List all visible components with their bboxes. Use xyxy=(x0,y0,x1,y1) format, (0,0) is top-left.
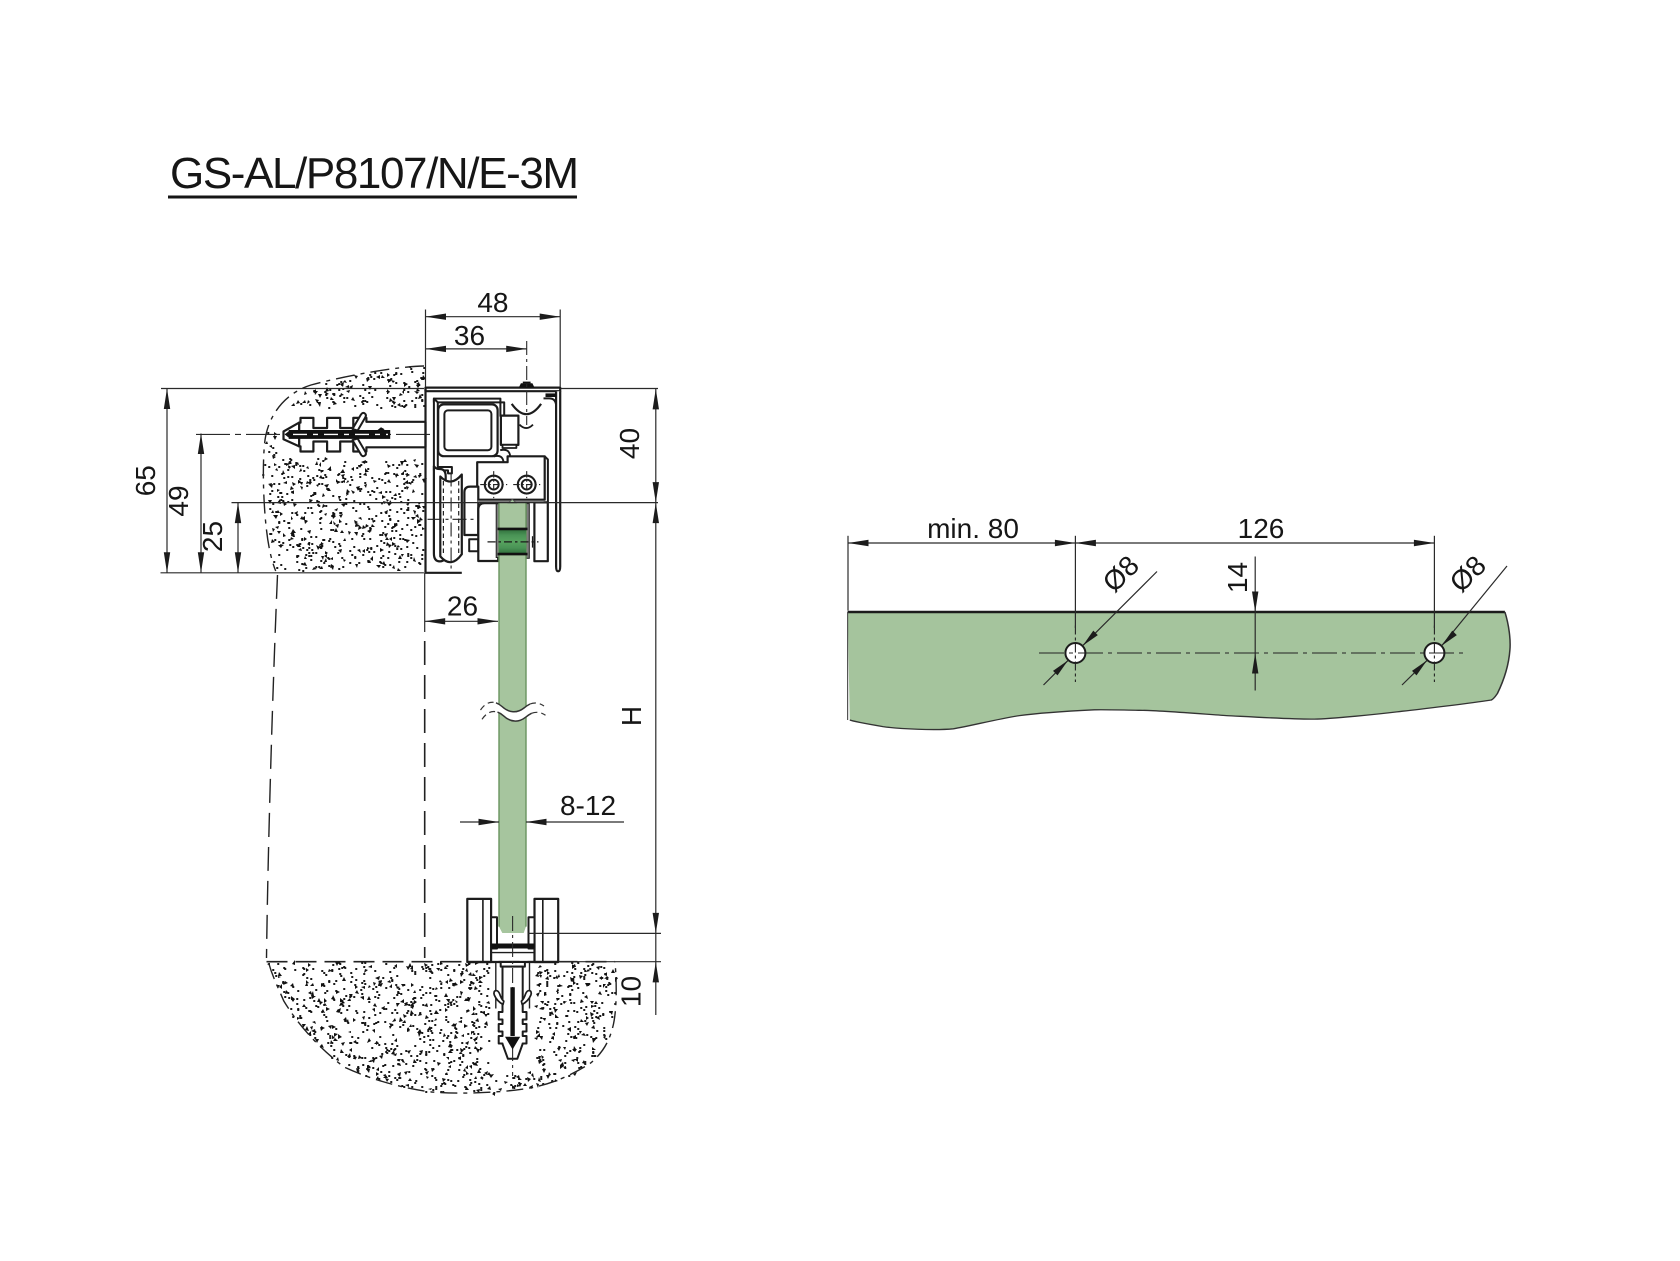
svg-text:min. 80: min. 80 xyxy=(927,513,1019,544)
svg-text:14: 14 xyxy=(1222,562,1253,593)
svg-text:49: 49 xyxy=(163,485,194,516)
svg-text:65: 65 xyxy=(130,465,161,496)
svg-text:10: 10 xyxy=(616,976,647,1007)
svg-text:126: 126 xyxy=(1238,513,1285,544)
svg-text:40: 40 xyxy=(614,428,645,459)
svg-text:48: 48 xyxy=(477,287,508,318)
svg-text:36: 36 xyxy=(454,320,485,351)
svg-text:H: H xyxy=(616,706,647,726)
svg-text:26: 26 xyxy=(447,591,478,622)
svg-text:25: 25 xyxy=(197,521,228,552)
svg-text:GS-AL/P8107/N/E-3M: GS-AL/P8107/N/E-3M xyxy=(170,149,578,198)
svg-text:8-12: 8-12 xyxy=(560,790,616,821)
